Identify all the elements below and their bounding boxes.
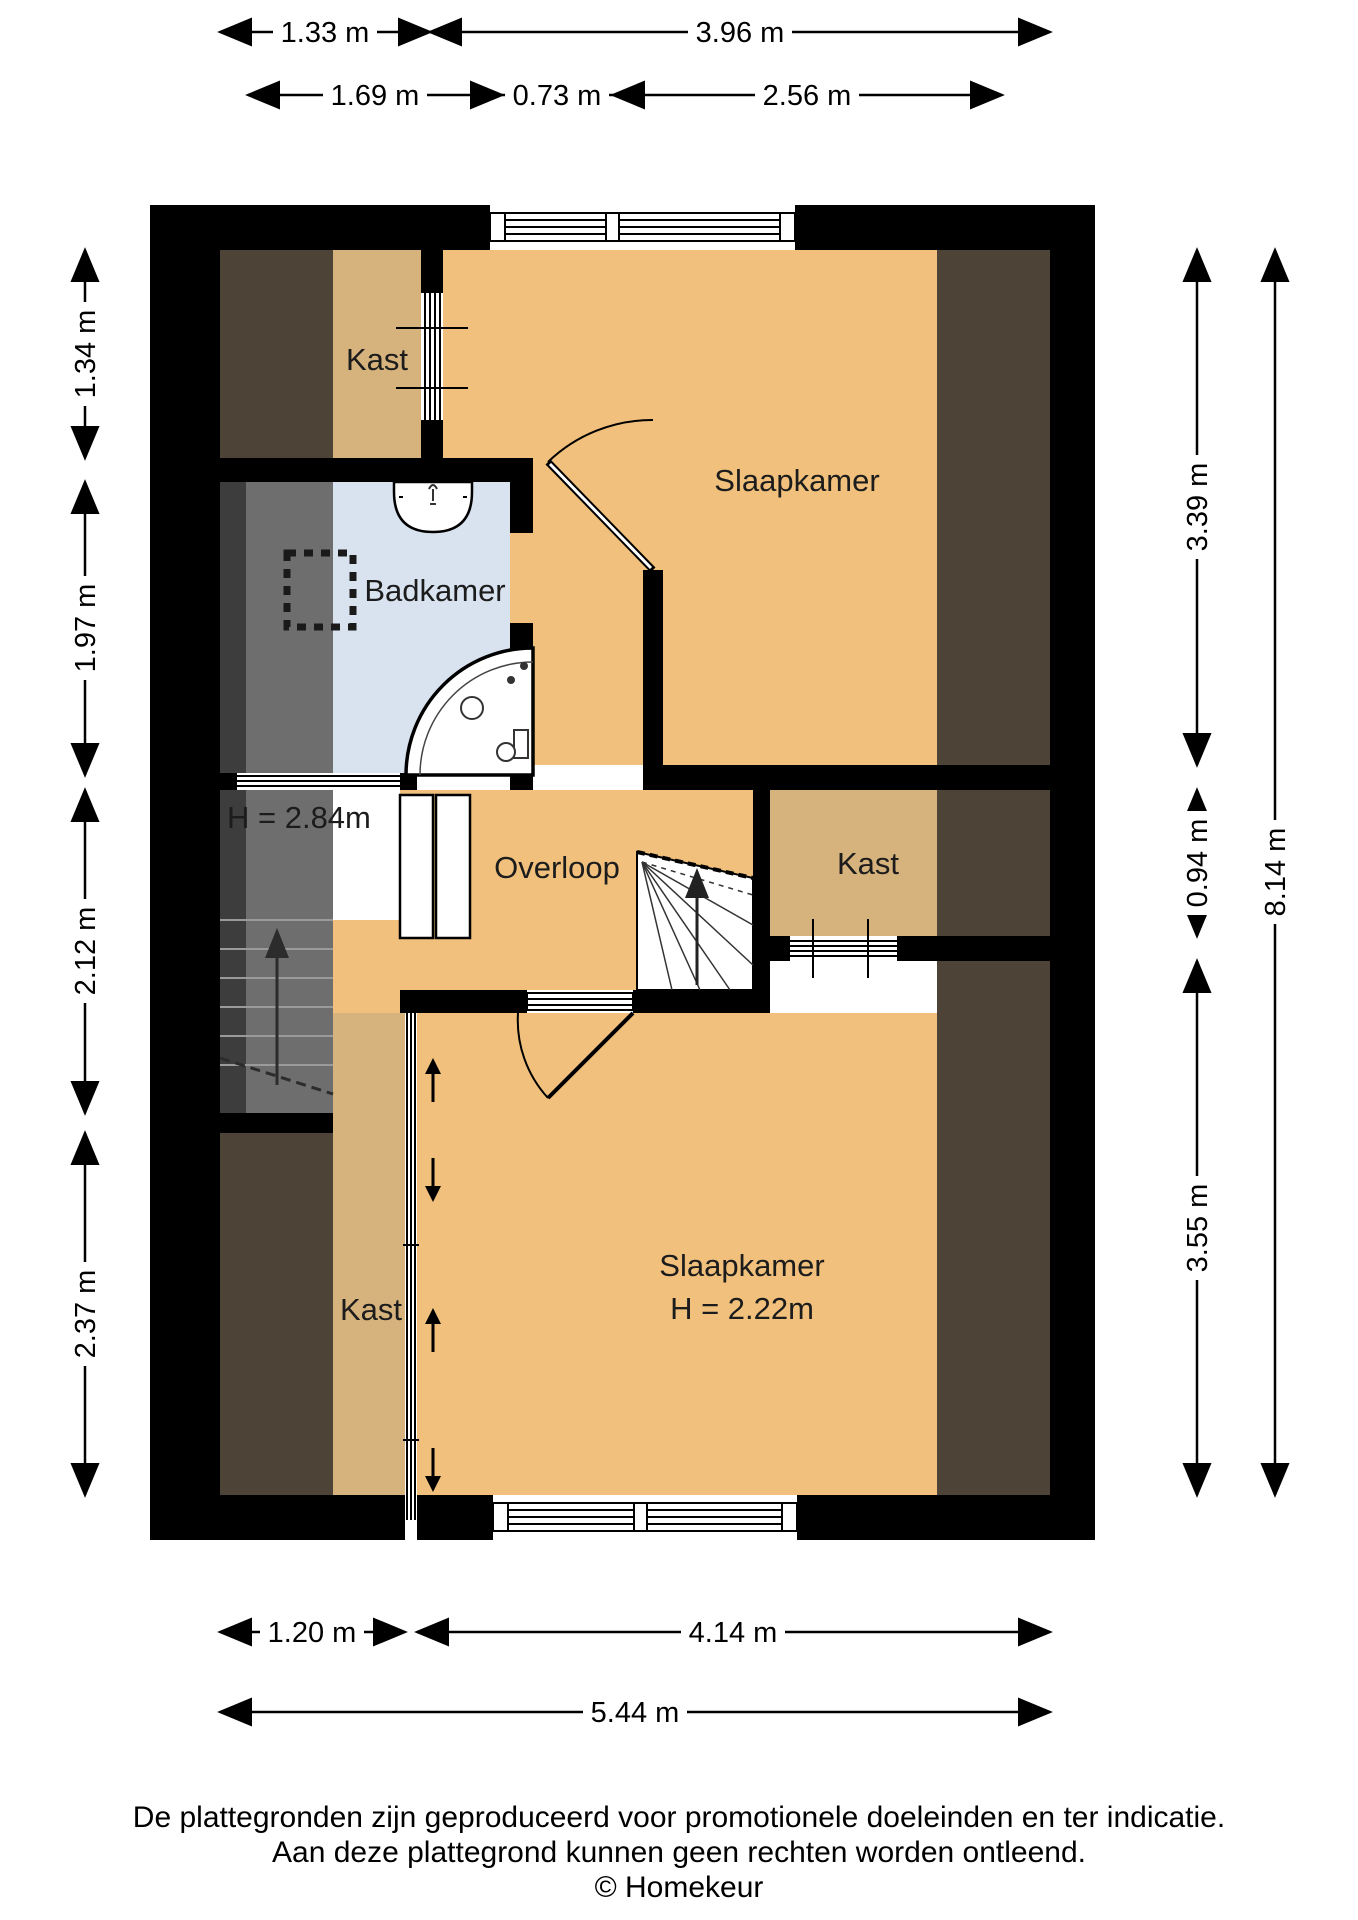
dimension-label: 2.37 m (70, 1270, 102, 1359)
wall-badkamer-right-a (510, 458, 533, 533)
wall-slaapkamer-bottom (643, 765, 1050, 790)
dimension-label: 1.69 m (331, 80, 420, 112)
dimension-label: 1.20 m (268, 1617, 357, 1649)
wall-slaapkamer-left (643, 570, 663, 765)
room-label-kast-top: Kast (346, 342, 408, 377)
footer-disclaimer-line3: © Homekeur (595, 1871, 764, 1904)
wall-kast-mid-bottom-b (897, 936, 1095, 961)
window-top-icon (490, 205, 795, 250)
low-headroom-area (220, 1133, 333, 1495)
cupboards-icon (400, 795, 470, 938)
wall-kast-badkamer (220, 458, 533, 482)
wall-below-stairs (150, 1113, 333, 1133)
dimension-label: 1.33 m (281, 17, 370, 49)
room-label-overloop: Overloop (494, 850, 620, 885)
wall-right (1050, 205, 1095, 1540)
dimension-label: 3.39 m (1182, 463, 1214, 552)
room-label-kast-mid: Kast (837, 846, 899, 881)
low-headroom-area (937, 961, 1050, 1495)
wall-overloop-bottom-b (633, 990, 770, 1013)
wall-overloop-bottom-a (400, 990, 527, 1013)
wall-kast-mid-bottom-a (753, 936, 790, 961)
dimension-label: 2.56 m (763, 80, 852, 112)
sink-icon (394, 482, 472, 532)
wall-kast-mid-left (753, 790, 770, 1013)
wall-left (150, 205, 220, 1540)
room-label-kast-bottom: Kast (340, 1292, 402, 1327)
low-headroom-area (937, 250, 1050, 765)
dimension-label: 3.55 m (1182, 1184, 1214, 1273)
kast-bottom-floor (333, 1013, 405, 1495)
wall-bottom-2 (417, 1495, 493, 1540)
badkamer-dark-strip (220, 482, 246, 775)
room-label-slaapkamer-bottom: Slaapkamer (659, 1248, 824, 1283)
window-bottom-icon (493, 1495, 797, 1540)
dimension-label: 0.73 m (513, 80, 602, 112)
dimension-label: 1.34 m (70, 310, 102, 399)
low-headroom-area (937, 790, 1050, 936)
floor-plan: Kast Slaapkamer Badkamer H = 2.84m Overl… (0, 0, 1358, 1920)
wall-kast-top-a (421, 250, 443, 293)
room-label-stairwell-height: H = 2.84m (227, 800, 371, 835)
footer-disclaimer-line2: Aan deze plattegrond kunnen geen rechten… (272, 1836, 1086, 1869)
wall-bottom-3 (797, 1495, 1095, 1540)
room-label-badkamer: Badkamer (364, 573, 505, 608)
room-label-slaapkamer-top: Slaapkamer (714, 463, 879, 498)
corridor-floor (533, 482, 643, 765)
wall-bottom-1 (150, 1495, 405, 1540)
sliding-door-badkamer-icon (220, 773, 417, 790)
dimension-label: 0.94 m (1182, 819, 1214, 908)
dimension-label: 4.14 m (689, 1617, 778, 1649)
footer-disclaimer-line1: De plattegronden zijn geproduceerd voor … (133, 1801, 1225, 1834)
dimension-label: 5.44 m (591, 1697, 680, 1729)
dimension-label: 8.14 m (1260, 828, 1292, 917)
dimension-label: 3.96 m (696, 17, 785, 49)
dimension-label: 1.97 m (70, 584, 102, 673)
wall-top-left (150, 205, 490, 250)
room-label-slaapkamer-bottom-height: H = 2.22m (670, 1291, 814, 1326)
dimension-label: 2.12 m (70, 907, 102, 996)
wall-kast-top-b (421, 420, 443, 458)
footer-disclaimer: De plattegronden zijn geproduceerd voor … (133, 1801, 1225, 1904)
low-headroom-area (220, 250, 333, 458)
